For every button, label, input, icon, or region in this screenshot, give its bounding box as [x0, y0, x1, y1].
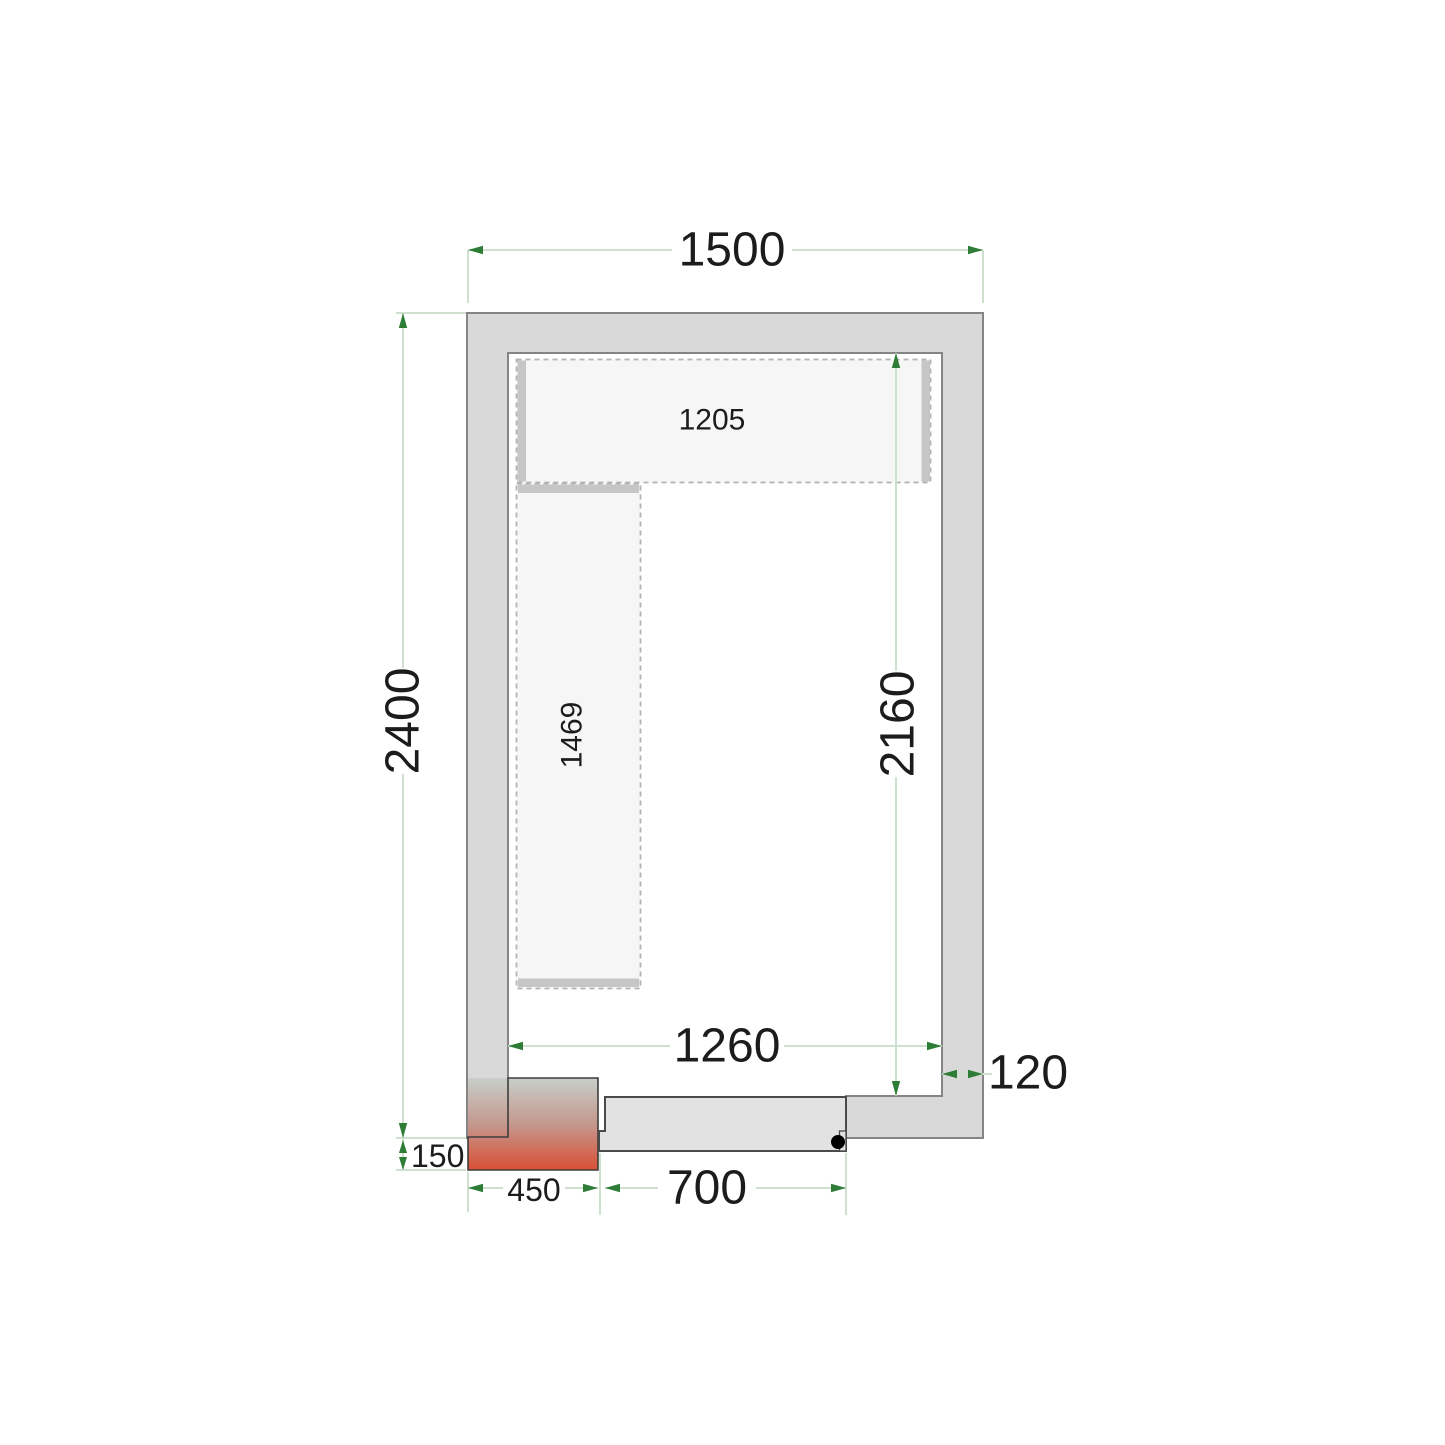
door-hinge-dot: [831, 1135, 845, 1149]
arrow-1500-left: [468, 246, 483, 254]
left-shelf-length-label: 1469: [556, 702, 589, 769]
left-shelf-support-bottom: [518, 979, 639, 988]
sill-depth-label: 150: [411, 1138, 464, 1174]
arrow-1260-right: [927, 1042, 942, 1050]
inner-width-label: 1260: [674, 1020, 781, 1073]
heater-gradient-rect: [468, 1078, 598, 1170]
arrow-1500-right: [968, 246, 983, 254]
door-leaf: [599, 1097, 846, 1151]
arrow-450-left: [468, 1184, 483, 1192]
door: [599, 1097, 846, 1151]
top-shelf-length-label: 1205: [679, 404, 746, 437]
arrow-150-bottom: [399, 1157, 407, 1170]
arrow-150-top: [399, 1140, 407, 1153]
top-shelf-support-left: [518, 361, 527, 482]
arrow-2160-bottom: [892, 1081, 900, 1096]
shelf-outlines: [517, 360, 931, 989]
arrow-700-left: [605, 1184, 620, 1192]
arrow-700-right: [831, 1184, 846, 1192]
cold-room-floor-plan: 1500 2400 2160 1260 120 150 450 700 1205…: [0, 0, 1445, 1445]
outer-width-label: 1500: [679, 224, 786, 277]
left-shelf-support-top: [518, 485, 639, 494]
arrow-1260-left: [508, 1042, 523, 1050]
inner-height-label: 2160: [872, 671, 925, 778]
outer-height-label: 2400: [377, 668, 430, 775]
top-shelf-support-right: [922, 361, 931, 482]
arrow-450-right: [583, 1184, 598, 1192]
heater-corner-block: [468, 1078, 598, 1170]
corner-block-width-label: 450: [507, 1172, 560, 1208]
arrow-2400-top: [399, 313, 407, 328]
door-width-label: 700: [667, 1162, 747, 1215]
wall-thickness-label: 120: [988, 1047, 1068, 1100]
floor-plan-canvas: 1500 2400 2160 1260 120 150 450 700 1205…: [0, 0, 1445, 1445]
arrow-2400-bottom: [399, 1123, 407, 1138]
